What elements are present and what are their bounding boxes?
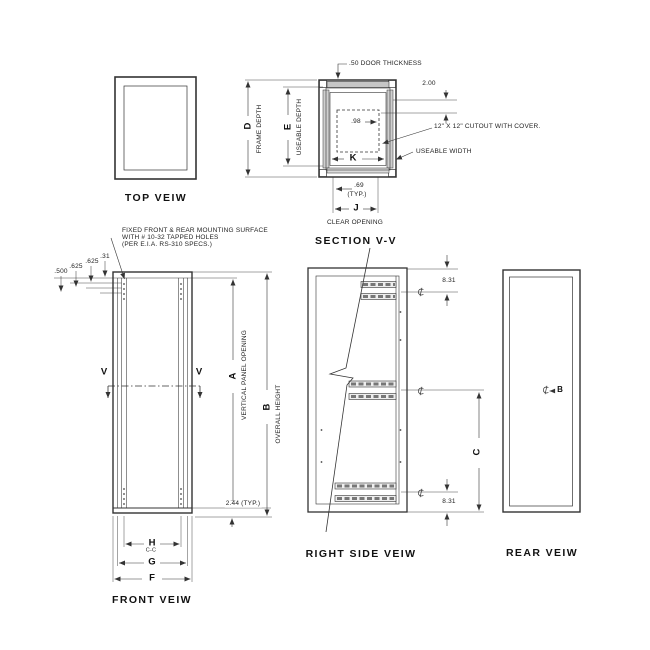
dim-500: .500 <box>54 269 67 276</box>
cutout-dashed-outline <box>337 110 379 152</box>
dim-a: A <box>228 371 238 382</box>
dim-31: .31 <box>100 254 110 261</box>
dim-e: E <box>283 122 293 132</box>
section-view-title: SECTION V-V <box>315 236 397 247</box>
engineering-drawing-canvas: TOP VEIW .50 DOOR THICKNESS 2.00 .98 12"… <box>0 0 650 650</box>
dim-j: J <box>351 203 360 213</box>
dim-98: .98 <box>351 119 361 126</box>
top-view-title: TOP VEIW <box>125 193 187 204</box>
section-cut-v-left: V <box>99 367 109 377</box>
vertical-panel-opening-label: VERTICAL PANEL OPENING <box>242 330 249 420</box>
mounting-note-line3: (PER E.I.A. RS-310 SPECS.) <box>122 242 212 249</box>
dim-k: K <box>348 153 359 163</box>
right-side-view-title: RIGHT SIDE VEIW <box>306 549 417 560</box>
section-cut-v-right: V <box>194 367 204 377</box>
door-cross-section <box>327 82 389 88</box>
dim-c: C <box>472 447 482 458</box>
dim-69: .69 <box>354 183 364 190</box>
overall-height-label: OVERALL HEIGHT <box>276 385 283 444</box>
rear-wall <box>327 168 389 173</box>
mounting-holes <box>123 283 182 505</box>
break-line <box>326 248 370 532</box>
dim-b: B <box>262 402 272 413</box>
right-side-view-linework <box>308 248 484 532</box>
dim-625-a: .625 <box>69 264 82 271</box>
useable-depth-label: USEABLE DEPTH <box>297 99 304 155</box>
dim-244-typ: 2.44 (TYP.) <box>225 501 262 508</box>
front-view-linework <box>54 238 272 582</box>
dim-69-typ: (TYP.) <box>347 192 366 199</box>
dim-g: G <box>146 557 157 567</box>
dim-831-bottom: 8.31 <box>442 499 455 506</box>
rear-view-linework <box>503 270 580 512</box>
dim-d: D <box>243 121 253 132</box>
dim-h-cc: C-C <box>146 548 156 554</box>
door-thickness-label: .50 DOOR THICKNESS <box>349 61 422 68</box>
cutout-note: 12" X 12" CUTOUT WITH COVER. <box>434 124 540 131</box>
useable-width-label: USEABLE WIDTH <box>416 149 472 156</box>
clear-opening-label: CLEAR OPENING <box>327 220 383 227</box>
frame-depth-label: FRAME DEPTH <box>257 105 264 154</box>
front-view-title: FRONT VEIW <box>112 595 192 606</box>
dim-831-top: 8.31 <box>442 278 455 285</box>
slotted-rails <box>335 282 396 502</box>
dim-2-00: 2.00 <box>422 81 435 88</box>
dim-625-b: .625 <box>85 259 98 266</box>
dim-f: F <box>147 573 157 583</box>
top-view-linework <box>115 77 196 179</box>
rear-view-title: REAR VEIW <box>506 548 578 559</box>
rear-dim-b: B <box>555 386 565 394</box>
